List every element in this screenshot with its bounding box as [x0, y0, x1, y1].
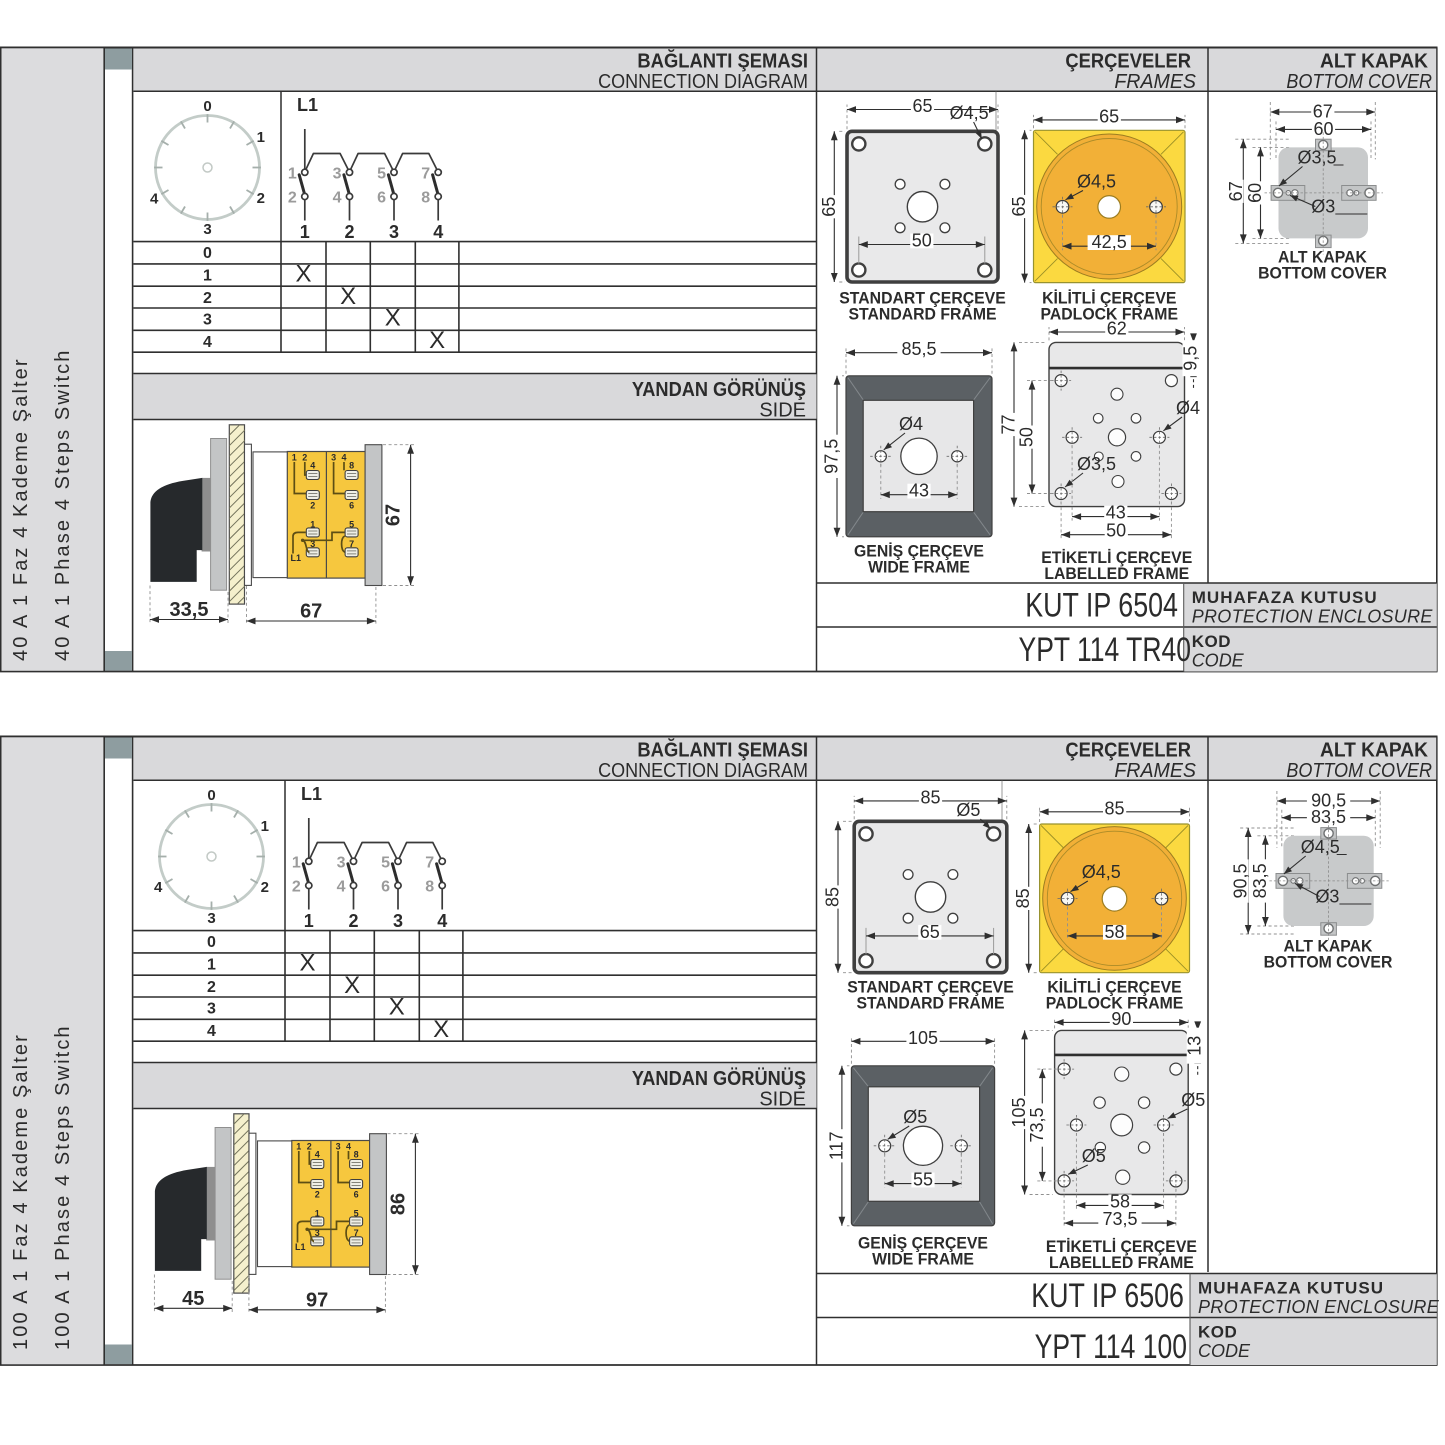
- svg-text:2: 2: [261, 879, 269, 896]
- svg-text:X: X: [344, 972, 360, 999]
- svg-text:BAĞLANTI ŞEMASI: BAĞLANTI ŞEMASI: [637, 739, 808, 762]
- svg-text:2: 2: [203, 290, 212, 307]
- svg-text:4: 4: [333, 190, 342, 207]
- svg-text:2: 2: [315, 1190, 320, 1200]
- svg-text:Ø5: Ø5: [956, 800, 980, 820]
- svg-text:65: 65: [920, 922, 940, 942]
- svg-text:5: 5: [381, 855, 390, 872]
- svg-text:42,5: 42,5: [1092, 232, 1127, 252]
- svg-text:2: 2: [288, 190, 297, 207]
- svg-text:4: 4: [207, 1023, 216, 1040]
- svg-text:86: 86: [387, 1193, 409, 1215]
- svg-text:1: 1: [304, 911, 314, 931]
- svg-text:ÇERÇEVELER: ÇERÇEVELER: [1065, 740, 1191, 762]
- svg-text:85,5: 85,5: [901, 339, 936, 359]
- svg-text:4: 4: [346, 1142, 351, 1152]
- svg-text:117: 117: [826, 1131, 846, 1160]
- svg-text:BOTTOM COVER: BOTTOM COVER: [1264, 953, 1393, 972]
- svg-text:65: 65: [1099, 106, 1119, 126]
- svg-text:1: 1: [261, 818, 269, 835]
- svg-text:8: 8: [425, 879, 434, 896]
- svg-text:X: X: [429, 327, 445, 354]
- svg-text:33,5: 33,5: [170, 599, 209, 621]
- svg-text:ALT KAPAK: ALT KAPAK: [1320, 739, 1428, 761]
- svg-text:Ø5: Ø5: [903, 1107, 927, 1127]
- svg-text:100 A 1 Faz 4 Kademe Şalter: 100 A 1 Faz 4 Kademe Şalter: [10, 1033, 32, 1350]
- svg-text:4: 4: [315, 1149, 320, 1159]
- svg-text:X: X: [433, 1016, 449, 1043]
- svg-text:8: 8: [354, 1149, 359, 1159]
- svg-text:L1: L1: [295, 1242, 306, 1252]
- svg-text:YPT 114 100: YPT 114 100: [1035, 1328, 1187, 1366]
- svg-text:60: 60: [1245, 183, 1265, 203]
- svg-text:6: 6: [377, 190, 386, 207]
- svg-text:Ø4,5: Ø4,5: [1301, 837, 1340, 857]
- svg-text:MUHAFAZA KUTUSU: MUHAFAZA KUTUSU: [1198, 1279, 1384, 1298]
- svg-text:2: 2: [348, 911, 358, 931]
- svg-text:83,5: 83,5: [1311, 807, 1346, 827]
- svg-text:STANDARD FRAME: STANDARD FRAME: [856, 994, 1004, 1013]
- svg-text:50: 50: [1106, 521, 1126, 541]
- svg-text:FRAMES: FRAMES: [1114, 71, 1196, 93]
- svg-text:65: 65: [912, 96, 932, 116]
- svg-text:5: 5: [377, 166, 386, 183]
- svg-text:97,5: 97,5: [822, 439, 842, 474]
- svg-text:83,5: 83,5: [1250, 863, 1270, 898]
- svg-text:BOTTOM COVER: BOTTOM COVER: [1286, 760, 1432, 782]
- svg-text:X: X: [340, 283, 356, 310]
- svg-text:85: 85: [1013, 888, 1033, 908]
- svg-text:3: 3: [207, 910, 215, 927]
- svg-text:67: 67: [1226, 181, 1246, 201]
- svg-text:4: 4: [341, 453, 346, 463]
- svg-text:65: 65: [819, 197, 839, 217]
- svg-text:CODE: CODE: [1192, 651, 1245, 671]
- svg-text:2: 2: [302, 453, 307, 463]
- svg-text:L1: L1: [297, 95, 318, 115]
- svg-text:8: 8: [421, 190, 430, 207]
- svg-text:105: 105: [908, 1028, 938, 1048]
- svg-text:3: 3: [336, 1142, 341, 1152]
- svg-text:13: 13: [1185, 1036, 1205, 1056]
- svg-text:4: 4: [337, 879, 346, 896]
- svg-text:67: 67: [300, 601, 322, 623]
- svg-text:8: 8: [349, 460, 354, 470]
- svg-text:90: 90: [1111, 1009, 1131, 1029]
- svg-text:Ø5: Ø5: [1181, 1090, 1205, 1110]
- svg-text:Ø3,5: Ø3,5: [1077, 454, 1116, 474]
- svg-text:LABELLED FRAME: LABELLED FRAME: [1049, 1254, 1194, 1273]
- svg-text:PROTECTION ENCLOSURE: PROTECTION ENCLOSURE: [1192, 607, 1434, 627]
- svg-text:55: 55: [913, 1170, 933, 1190]
- svg-text:6: 6: [381, 879, 390, 896]
- svg-text:CONNECTION DIAGRAM: CONNECTION DIAGRAM: [598, 760, 808, 782]
- svg-text:4: 4: [203, 334, 212, 351]
- svg-text:WIDE FRAME: WIDE FRAME: [872, 1250, 974, 1269]
- svg-text:BAĞLANTI ŞEMASI: BAĞLANTI ŞEMASI: [637, 50, 808, 73]
- svg-text:7: 7: [421, 166, 430, 183]
- svg-text:3: 3: [331, 453, 336, 463]
- svg-text:3: 3: [203, 221, 211, 238]
- svg-text:YANDAN GÖRÜNÜŞ: YANDAN GÖRÜNÜŞ: [632, 1068, 806, 1090]
- svg-text:2: 2: [207, 979, 216, 996]
- svg-text:60: 60: [1313, 119, 1333, 139]
- svg-text:2: 2: [310, 501, 315, 511]
- svg-text:1: 1: [257, 129, 265, 146]
- svg-text:SIDE: SIDE: [759, 400, 806, 422]
- svg-text:BOTTOM COVER: BOTTOM COVER: [1258, 264, 1387, 283]
- svg-text:67: 67: [383, 504, 405, 526]
- svg-text:1: 1: [296, 1142, 301, 1152]
- svg-text:4: 4: [150, 190, 159, 207]
- svg-text:KOD: KOD: [1198, 1323, 1237, 1342]
- svg-text:Ø4,5: Ø4,5: [1082, 862, 1121, 882]
- svg-text:7: 7: [425, 855, 434, 872]
- svg-text:FRAMES: FRAMES: [1114, 760, 1196, 782]
- svg-text:3: 3: [389, 222, 399, 242]
- svg-text:BOTTOM COVER: BOTTOM COVER: [1286, 71, 1432, 93]
- svg-text:90,5: 90,5: [1231, 863, 1251, 898]
- svg-text:4: 4: [437, 911, 447, 931]
- svg-text:1: 1: [300, 222, 310, 242]
- svg-text:85: 85: [1104, 798, 1124, 818]
- svg-text:1: 1: [288, 166, 297, 183]
- svg-text:2: 2: [344, 222, 354, 242]
- svg-text:1: 1: [292, 855, 301, 872]
- svg-text:X: X: [295, 261, 311, 288]
- svg-text:73,5: 73,5: [1027, 1107, 1047, 1142]
- svg-text:ALT KAPAK: ALT KAPAK: [1320, 50, 1428, 72]
- svg-text:L1: L1: [301, 784, 322, 804]
- svg-text:3: 3: [207, 1001, 216, 1018]
- svg-text:PROTECTION ENCLOSURE: PROTECTION ENCLOSURE: [1198, 1297, 1440, 1317]
- svg-text:2: 2: [292, 879, 301, 896]
- svg-text:2: 2: [257, 190, 265, 207]
- svg-text:X: X: [385, 305, 401, 332]
- svg-text:Ø4,5: Ø4,5: [1077, 172, 1116, 192]
- svg-text:77: 77: [999, 414, 1019, 434]
- svg-text:1: 1: [203, 268, 212, 285]
- svg-text:43: 43: [909, 481, 929, 501]
- svg-text:MUHAFAZA KUTUSU: MUHAFAZA KUTUSU: [1192, 588, 1378, 607]
- svg-text:9,5: 9,5: [1181, 346, 1201, 371]
- svg-text:Ø4: Ø4: [1176, 398, 1200, 418]
- svg-text:KUT IP 6506: KUT IP 6506: [1031, 1277, 1184, 1315]
- svg-text:85: 85: [920, 787, 940, 807]
- svg-text:Ø5: Ø5: [1082, 1146, 1106, 1166]
- svg-text:62: 62: [1107, 319, 1127, 339]
- svg-text:KOD: KOD: [1192, 632, 1231, 651]
- svg-text:WIDE FRAME: WIDE FRAME: [868, 558, 970, 577]
- svg-text:73,5: 73,5: [1102, 1209, 1137, 1229]
- svg-text:Ø3,5: Ø3,5: [1298, 148, 1337, 168]
- svg-text:50: 50: [912, 231, 932, 251]
- svg-text:0: 0: [207, 934, 216, 951]
- svg-text:3: 3: [333, 166, 342, 183]
- svg-text:40 A 1 Faz 4 Kademe Şalter: 40 A 1 Faz 4 Kademe Şalter: [10, 357, 32, 661]
- svg-text:1: 1: [207, 957, 216, 974]
- svg-text:43: 43: [1106, 503, 1126, 523]
- svg-text:97: 97: [306, 1289, 328, 1311]
- svg-text:100 A 1 Phase 4 Steps Switch: 100 A 1 Phase 4 Steps Switch: [52, 1024, 74, 1350]
- svg-text:YPT 114 TR40: YPT 114 TR40: [1019, 631, 1191, 669]
- svg-text:40 A 1 Phase 4 Steps Switch: 40 A 1 Phase 4 Steps Switch: [52, 349, 74, 661]
- svg-text:1: 1: [292, 453, 297, 463]
- svg-text:STANDARD FRAME: STANDARD FRAME: [848, 305, 996, 324]
- svg-text:4: 4: [433, 222, 443, 242]
- svg-text:CODE: CODE: [1198, 1341, 1251, 1361]
- svg-text:65: 65: [1009, 196, 1029, 216]
- svg-text:58: 58: [1104, 922, 1124, 942]
- svg-text:KUT IP 6504: KUT IP 6504: [1025, 587, 1178, 625]
- svg-text:ÇERÇEVELER: ÇERÇEVELER: [1065, 51, 1191, 73]
- svg-text:CONNECTION DIAGRAM: CONNECTION DIAGRAM: [598, 71, 808, 93]
- svg-text:LABELLED FRAME: LABELLED FRAME: [1044, 565, 1189, 584]
- svg-text:YANDAN GÖRÜNÜŞ: YANDAN GÖRÜNÜŞ: [632, 379, 806, 401]
- svg-text:Ø4,5: Ø4,5: [950, 103, 989, 123]
- svg-text:45: 45: [182, 1288, 204, 1310]
- svg-text:4: 4: [310, 460, 315, 470]
- svg-text:3: 3: [337, 855, 346, 872]
- svg-text:SIDE: SIDE: [759, 1089, 806, 1111]
- svg-text:0: 0: [203, 98, 211, 115]
- svg-text:2: 2: [307, 1142, 312, 1152]
- svg-text:4: 4: [154, 879, 163, 896]
- svg-text:0: 0: [207, 787, 215, 804]
- svg-text:3: 3: [393, 911, 403, 931]
- svg-text:50: 50: [1017, 427, 1037, 447]
- svg-text:85: 85: [823, 887, 843, 907]
- svg-text:L1: L1: [291, 553, 302, 563]
- svg-text:0: 0: [203, 245, 212, 262]
- svg-text:Ø4: Ø4: [899, 414, 923, 434]
- svg-text:X: X: [299, 950, 315, 977]
- svg-text:3: 3: [203, 312, 212, 329]
- svg-text:6: 6: [349, 501, 354, 511]
- svg-text:X: X: [389, 994, 405, 1021]
- svg-text:6: 6: [354, 1190, 359, 1200]
